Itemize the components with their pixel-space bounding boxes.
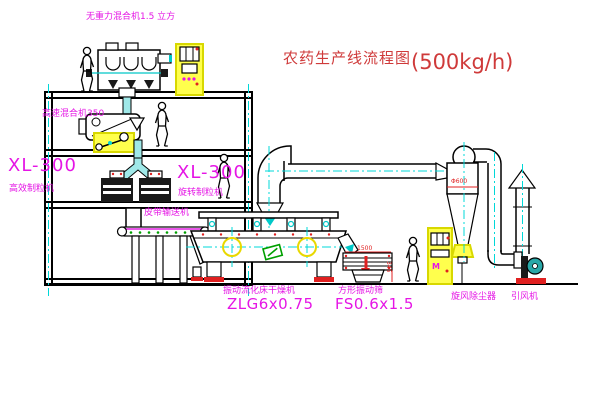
- fan-suction-pipe: [473, 149, 514, 268]
- induced-draft-fan: [514, 252, 546, 284]
- label-high-speed-mixer: 高速混合机350: [42, 110, 104, 119]
- label-granulator-left-name: 高效制粒机: [9, 185, 54, 194]
- flow-diagram-canvas: 农药生产线流程图(500kg/h) 无重力混合机1.5 立方 高速混合机350 …: [0, 0, 600, 403]
- feed-pipe-1: [123, 97, 131, 115]
- label-fan: 引风机: [511, 293, 538, 302]
- worker-figure-level1: [156, 102, 169, 146]
- label-granulator-mid-name: 旋转制粒机: [178, 189, 223, 198]
- high-speed-mixer: [79, 114, 144, 161]
- dimension-cyclone-diameter: Φ600: [451, 179, 467, 185]
- label-granulator-left-model: XL-300: [8, 157, 77, 175]
- control-cabinet-top: [176, 44, 203, 95]
- control-cabinet-right: [428, 228, 452, 284]
- dimension-screen-length: 1500: [357, 246, 372, 252]
- cabinet-motor-mark: M: [432, 262, 440, 271]
- cyclone-discharge-highlight: [452, 245, 473, 257]
- label-gravity-mixer: 无重力混合机1.5 立方: [86, 13, 175, 22]
- label-dryer-model: ZLG6x0.75: [227, 297, 314, 312]
- diagram-title: 农药生产线流程图(500kg/h): [283, 47, 513, 74]
- label-screen-model: FS0.6x1.5: [335, 297, 414, 312]
- label-granulator-mid-model: XL-300: [177, 164, 246, 182]
- title-text: 农药生产线流程图: [283, 49, 411, 67]
- label-cyclone: 旋风除尘器: [451, 293, 496, 302]
- granulator-right-machine: [139, 171, 171, 202]
- dimension-screen-height: 345: [385, 261, 391, 272]
- worker-figure-ground: [407, 237, 420, 281]
- label-belt-conveyor: 皮带输送机: [144, 209, 189, 218]
- title-capacity: (500kg/h): [411, 50, 513, 74]
